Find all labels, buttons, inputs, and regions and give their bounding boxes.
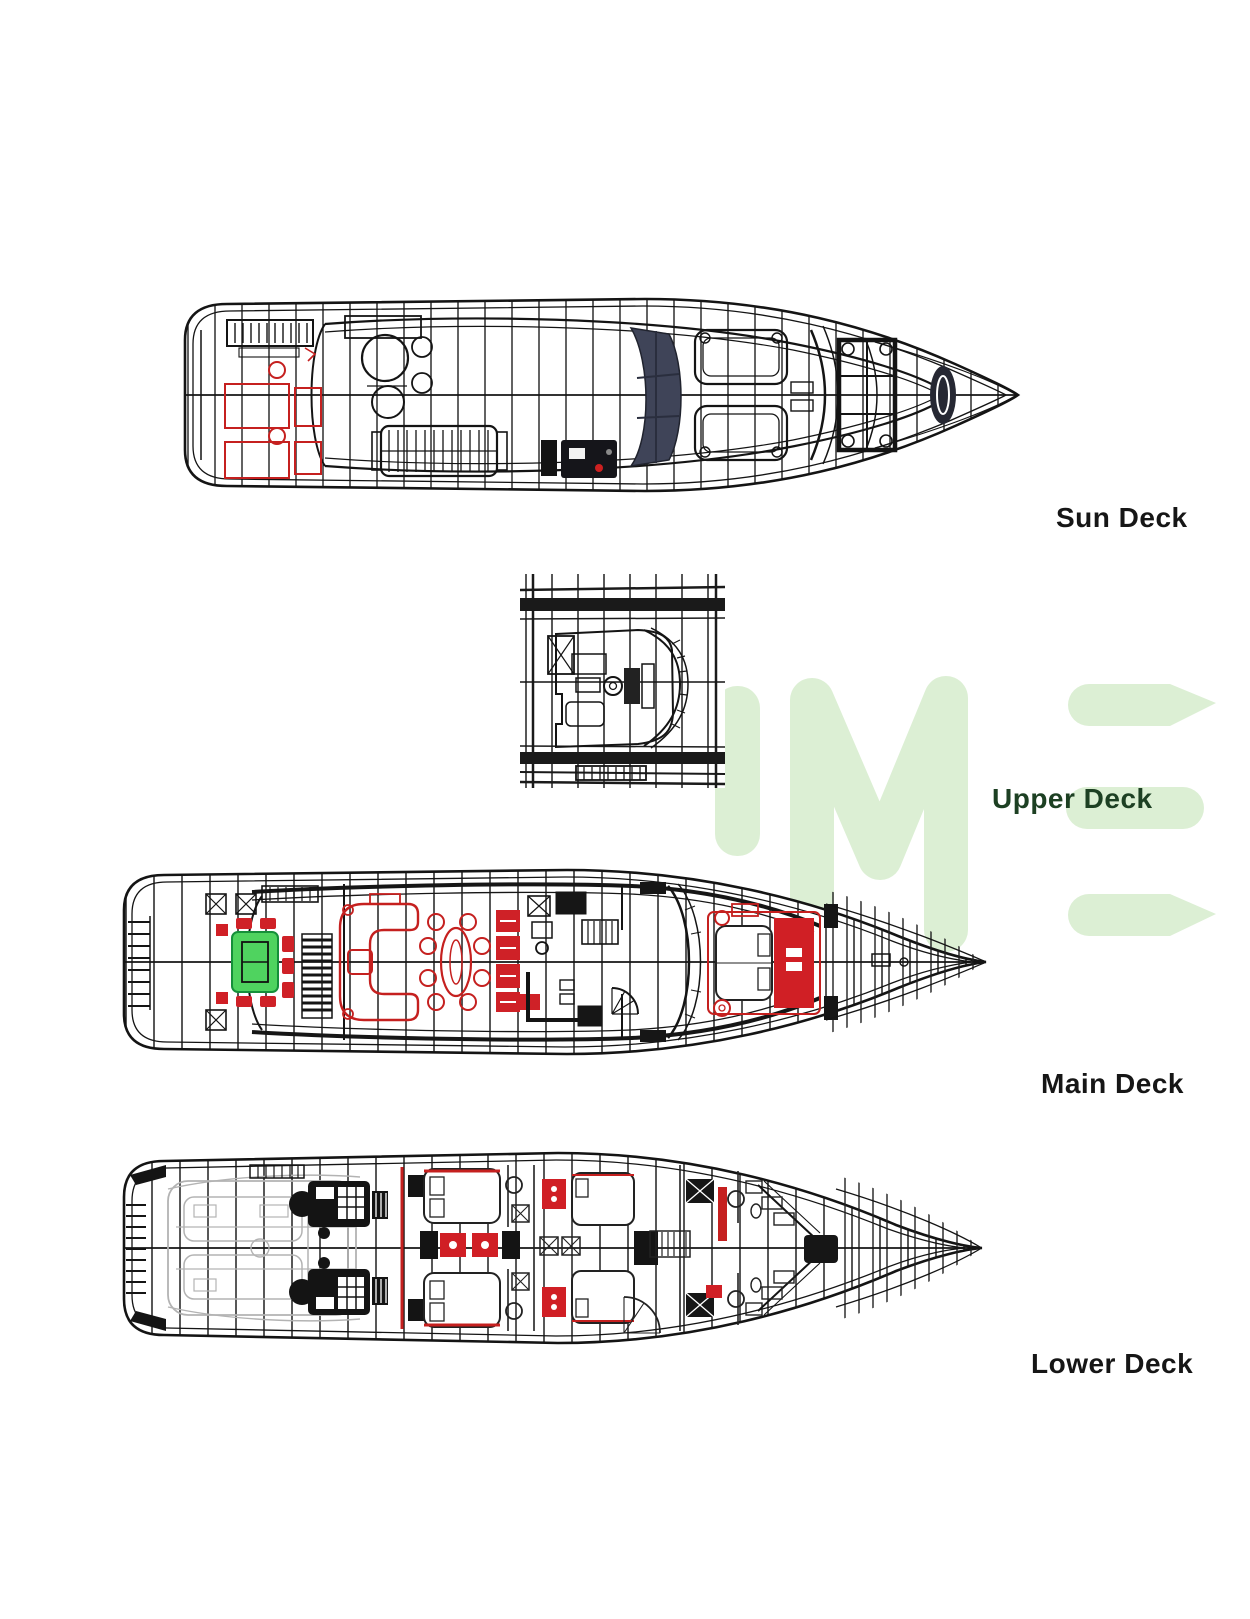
sun-deck-plan (175, 290, 1023, 502)
watermark-letter-e-bar1 (1068, 684, 1216, 726)
upper-console-block (624, 668, 640, 704)
sun-deck-label: Sun Deck (1056, 502, 1188, 534)
main-deck-label: Main Deck (1041, 1068, 1184, 1100)
upper-deck-label: Upper Deck (992, 783, 1153, 815)
watermark-letter-e-bar3 (1068, 894, 1216, 936)
deck-plan-page: Sun Deck Upper Deck Main Deck Lower Deck (0, 0, 1250, 1619)
sun-helm-console (541, 440, 617, 478)
lower-deck-label: Lower Deck (1031, 1348, 1193, 1380)
upper-deck-plan (520, 574, 725, 788)
lower-deck-plan (110, 1141, 992, 1355)
main-deck-plan (112, 860, 997, 1064)
sun-bow-oval (930, 366, 956, 424)
